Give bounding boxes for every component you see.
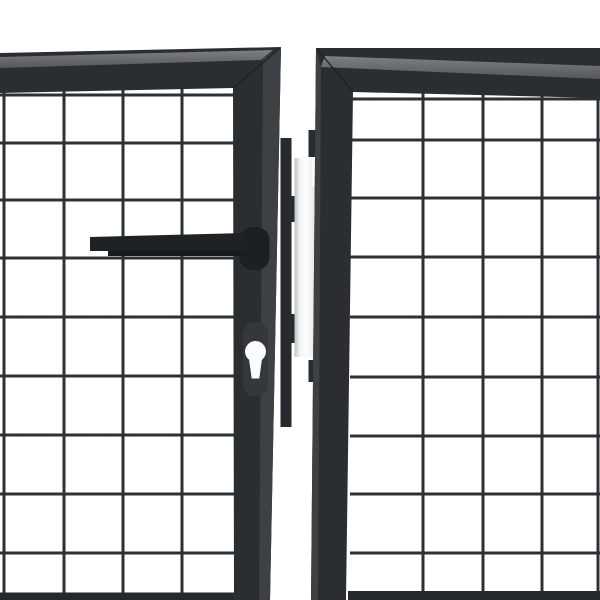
right-gate-bottom-bar [348, 591, 600, 600]
lock-edge-strip [281, 138, 292, 427]
handle-bar-underside [108, 251, 246, 256]
garden-gate-photo [0, 0, 600, 600]
product-image [0, 0, 600, 600]
left-gate-bottom-bar [0, 593, 237, 600]
hinge-post-face [295, 158, 313, 357]
